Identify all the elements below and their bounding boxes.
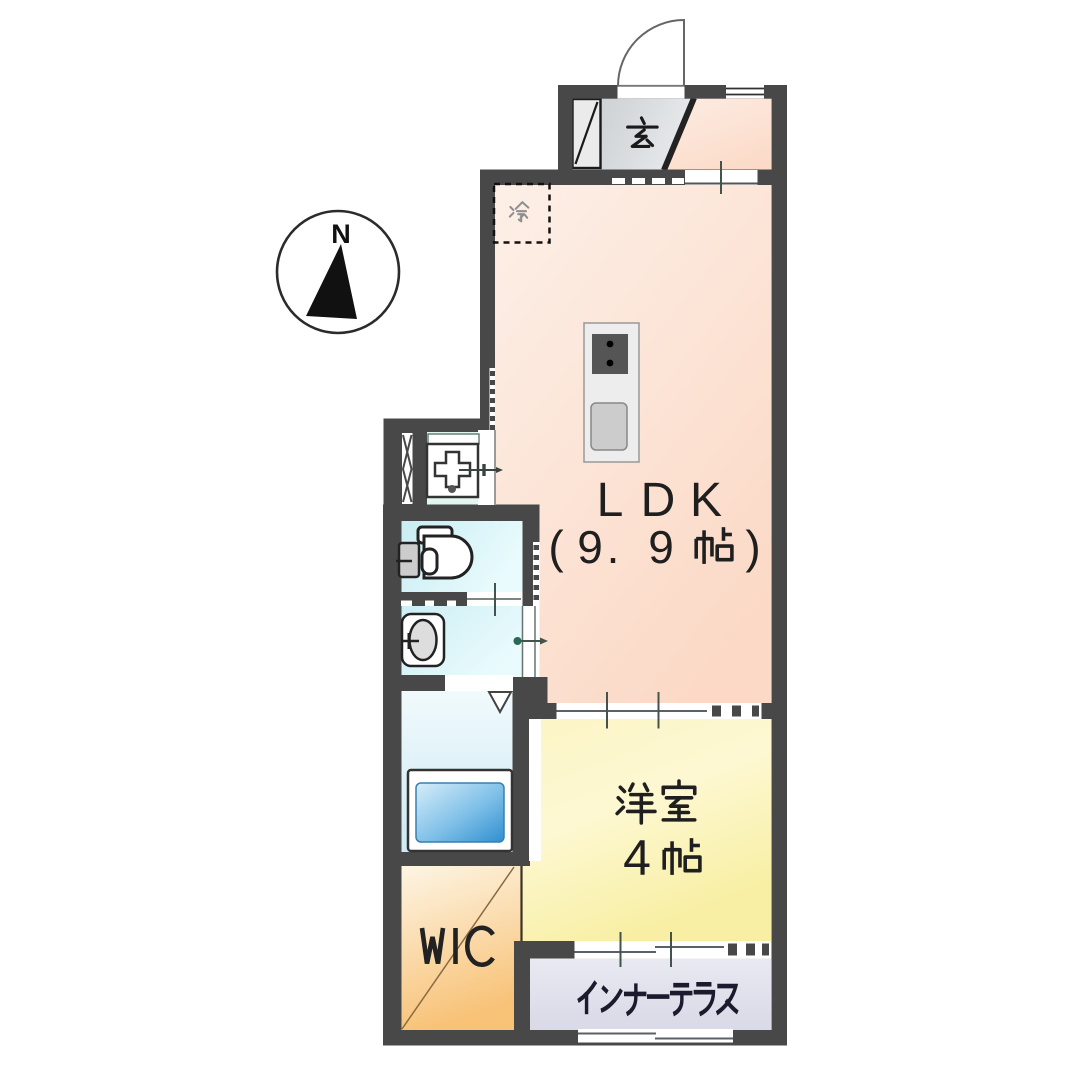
svg-text:.: . — [607, 521, 620, 573]
svg-text:L: L — [597, 474, 624, 527]
svg-text:9: 9 — [648, 521, 674, 573]
svg-text:9: 9 — [577, 521, 603, 573]
svg-text:(: ( — [548, 521, 564, 573]
svg-text:D: D — [641, 474, 676, 527]
svg-text:K: K — [690, 474, 722, 527]
svg-text:4: 4 — [623, 830, 651, 886]
svg-text:): ) — [745, 521, 760, 573]
